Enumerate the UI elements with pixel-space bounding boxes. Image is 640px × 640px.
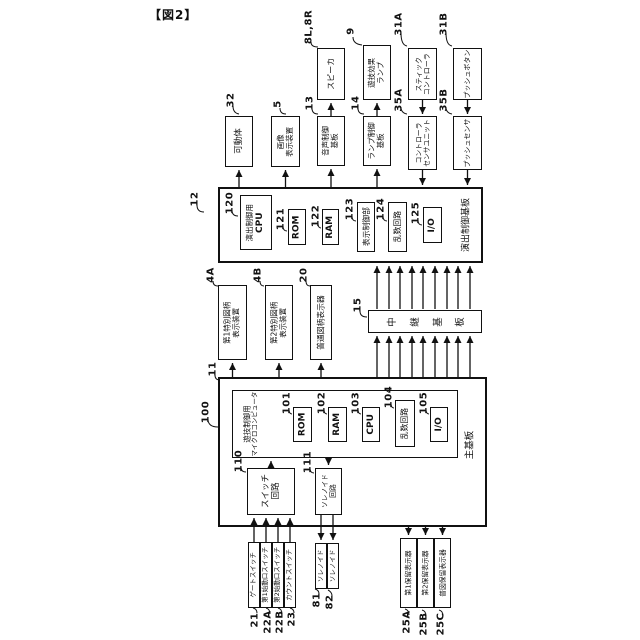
lamp-control-board-node: ランプ制御 基板 [363,116,391,166]
start2-switch-node: 第2始動口スイッチ [272,542,284,608]
start1-switch-node: 第1始動口スイッチ [260,542,272,608]
main-rom-node: ROM [293,407,312,442]
main-io-label: I/O [434,417,445,431]
stick-controller-line2: コントローラ [423,53,431,95]
game-micro-line2: マイクロコンピュータ [252,392,260,457]
gate-switch-node: ゲートスイッチ [248,542,260,608]
game-effect-lamp-line2: ランプ [377,58,386,88]
audio-control-board-node: 音声制御 基板 [317,116,345,166]
ref-game-micro: 100 [201,401,212,423]
image-display-node: 画像 表示装置 [271,116,300,167]
special-symbol-display1-line2: 表示装置 [233,301,242,343]
ref-effect-lamp: 9 [346,27,357,34]
ref-speaker: 8L,8R [304,10,315,44]
game-effect-lamp-node: 遊技効果 ランプ [363,45,391,100]
ref-display-ctrl: 123 [345,198,356,220]
count-switch-node: カウントスイッチ [284,542,296,608]
main-random-circuit-node: 乱数回路 [395,400,415,447]
audio-control-board-label: 音声制御 基板 [322,126,340,156]
ref-normal-display: 20 [299,268,310,283]
switch-circuit-label: スイッチ 回路 [261,474,281,508]
start1-switch-label: 第1始動口スイッチ [262,547,270,603]
stick-controller-line1: スティック [414,53,422,95]
image-display-label: 画像 表示装置 [277,127,295,157]
hold2-display-label: 第2保留表示器 [422,550,430,595]
movable-body-node: 可動体 [225,116,253,167]
controller-sensor-unit-node: コントローラ センサユニット [408,116,437,170]
ref-effect-rom: 121 [276,208,287,230]
switch-circuit-line2: 回路 [271,474,281,508]
ref-hold2: 25B [419,612,430,635]
switch-circuit-node: スイッチ 回路 [247,468,295,515]
ref-effect-io: 125 [411,202,422,224]
ref-audio-board: 13 [305,96,316,111]
ref-main-io: 105 [419,392,430,414]
push-sensor-label: プッシュセンサ [463,119,471,168]
gate-switch-label: ゲートスイッチ [250,552,258,598]
ref-effect-ram: 122 [311,205,322,227]
speaker-node: スピーカ [317,48,345,100]
effect-ram-node: RAM [322,209,339,245]
ref-relay: 15 [353,298,364,313]
normal-hold-display-node: 普図保留表示器 [434,538,451,608]
effect-rom-node: ROM [288,209,306,245]
count-switch-label: カウントスイッチ [286,549,294,601]
ref-main-rom: 101 [282,392,293,414]
solenoid-circuit-node: ソレノイド 回路 [315,468,342,515]
ref-count-switch: 23 [287,612,298,627]
normal-symbol-display-label: 普通図柄表示器 [316,295,325,350]
push-button-label: プッシュボタン [463,50,471,99]
display-control-label: 表示制御部 [361,208,370,247]
ref-lamp-board: 14 [351,96,362,111]
ref-main-ram: 102 [317,392,328,414]
effect-ram-label: RAM [325,216,336,239]
special-symbol-display2-label: 第2特別図柄 表示装置 [270,301,288,343]
hold2-display-node: 第2保留表示器 [417,538,434,608]
solenoid-circuit-line1: ソレノイド [320,475,328,509]
hold1-display-node: 第1保留表示器 [400,538,417,608]
figure-number-caption: 【図2】 [149,6,197,23]
hold1-display-label: 第1保留表示器 [405,550,413,595]
ref-switch-circuit: 110 [234,450,245,472]
main-cpu-node: CPU [362,407,380,442]
ref-effect-rand: 124 [376,198,387,220]
ref-start1-switch: 22A [263,610,274,633]
lamp-control-board-line2: 基板 [377,122,386,159]
main-cpu-label: CPU [366,414,377,435]
patent-figure-page: 【図2】 スピーカ 遊技効果 ランプ スティック コントローラ プッシュボタン … [0,0,640,640]
effect-io-label: I/O [427,218,438,232]
special-symbol-display1-label: 第1特別図柄 表示装置 [224,301,242,343]
display-control-node: 表示制御部 [357,202,375,252]
relay-board-node: 中継基板 [368,310,482,333]
push-sensor-node: プッシュセンサ [453,116,482,170]
start2-switch-label: 第2始動口スイッチ [274,547,282,603]
effect-io-node: I/O [423,207,442,243]
main-ram-label: RAM [332,413,343,436]
effect-board-name-label: 演出制御基板 [462,198,473,252]
switch-circuit-line1: スイッチ [261,474,271,508]
image-display-line2: 表示装置 [286,127,295,157]
special-symbol-display2-line2: 表示装置 [279,301,288,343]
ref-controller-sensor: 35A [394,88,405,111]
effect-random-circuit-label: 乱数回路 [393,211,402,242]
ref-effect-board: 12 [190,192,201,207]
ref-main-cpu: 103 [351,392,362,414]
solenoid-circuit-line2: 回路 [329,475,337,509]
ref-normal-hold: 25C [436,613,447,636]
ref-solenoid-circuit: 111 [303,451,314,473]
effect-cpu-line2: CPU [255,204,266,242]
ref-push-sensor: 35B [439,88,450,111]
speaker-label: スピーカ [326,58,335,90]
solenoid81-node: ソレノイド [315,543,327,589]
ref-hold1: 25A [402,610,413,633]
game-micro-label: 遊技制御用 マイクロコンピュータ [243,392,260,457]
ref-solenoid81: 81 [312,593,323,608]
effect-rom-label: ROM [292,215,303,239]
ref-sp1: 4A [206,267,217,283]
ref-solenoid82: 82 [325,595,336,610]
solenoid-circuit-label: ソレノイド 回路 [320,475,336,509]
ref-push-button: 31B [439,12,450,35]
controller-sensor-unit-label: コントローラ センサユニット [414,119,430,167]
solenoid82-node: ソレノイド [327,543,339,589]
controller-sensor-unit-line2: センサユニット [423,119,431,167]
normal-symbol-display-node: 普通図柄表示器 [310,285,332,360]
main-board-name-label: 主基板 [464,431,475,460]
game-effect-lamp-label: 遊技効果 ランプ [368,58,386,88]
ref-image-display: 5 [273,100,284,107]
lamp-control-board-label: ランプ制御 基板 [368,122,386,159]
special-symbol-display2-node: 第2特別図柄 表示装置 [265,285,293,360]
ref-main-board: 11 [208,362,219,377]
push-button-node: プッシュボタン [453,48,482,100]
ref-stick-controller: 31A [394,12,405,35]
controller-sensor-unit-line1: コントローラ [414,119,422,167]
main-rom-label: ROM [297,413,308,437]
main-io-node: I/O [430,407,448,442]
solenoid81-label: ソレノイド [317,550,325,583]
main-random-circuit-label: 乱数回路 [400,408,409,439]
effect-random-circuit-node: 乱数回路 [388,202,407,252]
stick-controller-node: スティック コントローラ [408,48,437,100]
effect-cpu-line1: 演出制御用 [246,204,255,242]
ref-effect-cpu: 120 [225,192,236,214]
main-ram-node: RAM [328,407,347,442]
audio-control-board-line2: 基板 [331,126,340,156]
normal-hold-display-label: 普図保留表示器 [439,549,447,597]
stick-controller-label: スティック コントローラ [414,53,431,95]
solenoid82-label: ソレノイド [329,550,337,583]
ref-start2-switch: 22B [275,610,286,633]
ref-main-rand: 104 [384,386,395,408]
ref-sp2: 4B [253,267,264,283]
ref-gate-switch: 21 [250,613,261,628]
special-symbol-display1-node: 第1特別図柄 表示装置 [218,285,247,360]
effect-cpu-node: 演出制御用 CPU [240,195,272,250]
movable-body-label: 可動体 [234,129,244,155]
effect-cpu-label: 演出制御用 CPU [246,204,265,242]
ref-movable: 32 [226,93,237,108]
